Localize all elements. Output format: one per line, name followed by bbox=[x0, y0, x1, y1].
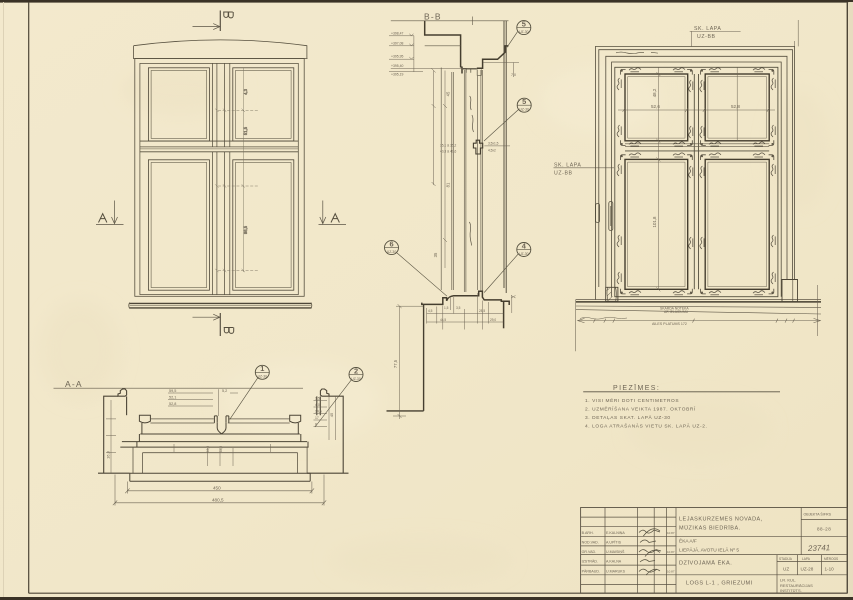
svg-text:U.MAISIŅŠ: U.MAISIŅŠ bbox=[606, 549, 625, 554]
svg-text:480,5: 480,5 bbox=[212, 497, 224, 502]
svg-text:4,0: 4,0 bbox=[315, 403, 320, 407]
svg-text:59,5: 59,5 bbox=[169, 389, 176, 393]
svg-text:+395,40: +395,40 bbox=[391, 64, 403, 68]
svg-text:40,3 & 40,6: 40,3 & 40,6 bbox=[440, 150, 457, 154]
svg-text:1. VISI MĒRI DOTI CENTIMETROS: 1. VISI MĒRI DOTI CENTIMETROS bbox=[585, 397, 679, 404]
svg-text:4,5x2: 4,5x2 bbox=[488, 148, 496, 152]
svg-text:A.KALNA: A.KALNA bbox=[606, 560, 622, 564]
svg-text:450: 450 bbox=[213, 485, 221, 490]
svg-text:B.ARH.: B.ARH. bbox=[582, 531, 594, 535]
svg-text:UZ: UZ bbox=[783, 567, 789, 572]
svg-text:PĀRBAUD.: PĀRBAUD. bbox=[582, 569, 600, 573]
svg-text:MŪZIKAS BIEDRĪBA.: MŪZIKAS BIEDRĪBA. bbox=[679, 525, 741, 532]
svg-text:UZ-30: UZ-30 bbox=[519, 30, 529, 34]
svg-text:29,0: 29,0 bbox=[490, 318, 496, 322]
svg-text:LIEPĀJĀ, AVOTU IELĀ Nº 5: LIEPĀJĀ, AVOTU IELĀ Nº 5 bbox=[679, 547, 739, 554]
svg-text:UZ-BB: UZ-BB bbox=[554, 171, 573, 177]
svg-text:3. DETAĻAS SKAT. LAPĀ UZ-30: 3. DETAĻAS SKAT. LAPĀ UZ-30 bbox=[585, 414, 671, 421]
svg-text:45: 45 bbox=[329, 412, 334, 417]
svg-text:UZ-BB: UZ-BB bbox=[697, 34, 716, 40]
svg-text:UZ-30: UZ-30 bbox=[258, 375, 268, 379]
svg-text:4,5: 4,5 bbox=[428, 309, 433, 313]
svg-text:AR IELAIDUMU: AR IELAIDUMU bbox=[664, 310, 689, 314]
svg-text:1,5: 1,5 bbox=[315, 397, 320, 401]
svg-text:3,5x1,5: 3,5x1,5 bbox=[488, 142, 499, 146]
svg-text:1-10: 1-10 bbox=[825, 567, 835, 572]
svg-text:2. UZMĒRĪŠANA VEIKTA 1987. OKT: 2. UZMĒRĪŠANA VEIKTA 1987. OKTOBRĪ bbox=[585, 406, 696, 413]
svg-text:A-A: A-A bbox=[65, 379, 83, 389]
svg-text:88-28: 88-28 bbox=[817, 527, 831, 532]
svg-text:28,5: 28,5 bbox=[479, 309, 485, 313]
svg-text:17: 17 bbox=[315, 416, 319, 420]
svg-text:98,5: 98,5 bbox=[243, 225, 248, 234]
svg-text:LR. KUL.: LR. KUL. bbox=[780, 578, 796, 583]
svg-text:10.87: 10.87 bbox=[667, 531, 675, 535]
svg-text:77,5: 77,5 bbox=[393, 359, 398, 368]
svg-text:6: 6 bbox=[389, 239, 393, 248]
svg-text:52,8: 52,8 bbox=[169, 402, 176, 406]
svg-text:101,8: 101,8 bbox=[652, 216, 657, 228]
svg-text:44,5: 44,5 bbox=[440, 318, 446, 322]
svg-text:5: 5 bbox=[522, 19, 526, 28]
svg-text:5,2: 5,2 bbox=[222, 389, 227, 393]
svg-text:1,5: 1,5 bbox=[444, 306, 449, 310]
svg-text:51,5: 51,5 bbox=[243, 126, 248, 135]
svg-text:STADIJA: STADIJA bbox=[779, 557, 793, 561]
svg-text:LAPA: LAPA bbox=[802, 557, 811, 561]
svg-text:U.MARUKS: U.MARUKS bbox=[606, 569, 626, 573]
svg-text:AILES PLATUMS 172: AILES PLATUMS 172 bbox=[652, 322, 687, 326]
svg-text:B-B: B-B bbox=[424, 12, 442, 22]
svg-text:NOD.VAD.: NOD.VAD. bbox=[582, 540, 599, 544]
svg-text:ĒKA A/F: ĒKA A/F bbox=[679, 538, 697, 545]
svg-text:LOGS L-1 , GRIEZUMI: LOGS L-1 , GRIEZUMI bbox=[686, 581, 753, 587]
svg-text:52,1: 52,1 bbox=[169, 396, 176, 400]
svg-text:35,1 & 35,2: 35,1 & 35,2 bbox=[440, 144, 457, 148]
svg-text:OBJEKTA ŠIFRS: OBJEKTA ŠIFRS bbox=[804, 512, 832, 517]
svg-text:35: 35 bbox=[433, 252, 438, 257]
svg-text:LEJASKURZEMES NOVADA,: LEJASKURZEMES NOVADA, bbox=[679, 517, 763, 523]
svg-text:UZ-28: UZ-28 bbox=[801, 567, 814, 572]
svg-text:10.87: 10.87 bbox=[667, 569, 675, 573]
svg-text:1: 1 bbox=[260, 364, 264, 373]
svg-text:3,5: 3,5 bbox=[456, 306, 461, 310]
svg-text:UZ-30: UZ-30 bbox=[387, 250, 397, 254]
svg-text:INSTITŪTS.: INSTITŪTS. bbox=[780, 588, 802, 593]
svg-text:UZ-30: UZ-30 bbox=[519, 252, 529, 256]
svg-text:+397,08: +397,08 bbox=[391, 41, 403, 45]
svg-text:UZ-30: UZ-30 bbox=[351, 377, 361, 381]
svg-text:UZ-30: UZ-30 bbox=[519, 108, 529, 112]
svg-text:45: 45 bbox=[446, 91, 451, 96]
svg-text:81: 81 bbox=[446, 182, 451, 187]
svg-text:SK. LAPA: SK. LAPA bbox=[694, 26, 721, 32]
svg-text:E.KALNIŅA: E.KALNIŅA bbox=[606, 531, 625, 535]
svg-text:A.UPĪTIS: A.UPĪTIS bbox=[606, 540, 622, 544]
svg-text:IZSTRĀD.: IZSTRĀD. bbox=[582, 560, 598, 564]
svg-text:4. LOGA ATRAŠANĀS VIETU SK. LA: 4. LOGA ATRAŠANĀS VIETU SK. LAPĀ UZ-2. bbox=[585, 423, 707, 430]
svg-text:10.87: 10.87 bbox=[667, 550, 675, 554]
svg-text:+395,95: +395,95 bbox=[391, 55, 403, 59]
svg-text:23741: 23741 bbox=[807, 543, 831, 553]
svg-text:52,6: 52,6 bbox=[651, 104, 660, 109]
svg-text:19,5: 19,5 bbox=[206, 446, 210, 452]
svg-text:MĒROGS: MĒROGS bbox=[824, 557, 838, 561]
svg-text:5: 5 bbox=[522, 97, 526, 106]
svg-text:7,0: 7,0 bbox=[511, 73, 516, 77]
svg-text:48,2: 48,2 bbox=[652, 88, 657, 97]
svg-text:2: 2 bbox=[354, 366, 358, 375]
svg-text:14,5: 14,5 bbox=[315, 410, 322, 414]
svg-text:52,8: 52,8 bbox=[731, 104, 740, 109]
svg-text:+395,19: +395,19 bbox=[391, 73, 403, 77]
svg-text:DZĪVOJAMĀ ĒKA.: DZĪVOJAMĀ ĒKA. bbox=[679, 560, 732, 567]
svg-text:14,5: 14,5 bbox=[219, 446, 223, 452]
svg-text:GR.VAD.: GR.VAD. bbox=[582, 550, 597, 554]
svg-text:16,8: 16,8 bbox=[106, 450, 111, 459]
svg-text:4,3: 4,3 bbox=[243, 88, 248, 94]
svg-text:+398,47: +398,47 bbox=[391, 31, 403, 35]
svg-text:PIEZĪMES:: PIEZĪMES: bbox=[613, 384, 660, 392]
